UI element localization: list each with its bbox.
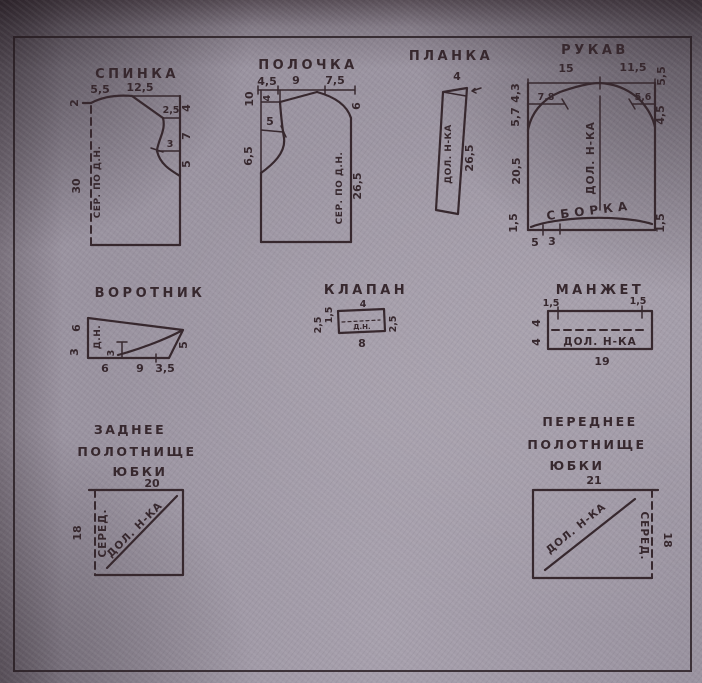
pattern-sheet-photo: СПИНКА 5,5 12,5 2 2,5 3 4 7 5 30 СЕР. ПО… <box>0 0 702 683</box>
klapan-measure-right: 2,5 <box>388 316 399 333</box>
polochka-shoulder-line <box>280 92 317 102</box>
piece-spinka: СПИНКА 5,5 12,5 2 2,5 3 4 7 5 30 СЕР. ПО… <box>70 56 205 271</box>
polochka-measure-top-b: 9 <box>292 74 300 87</box>
polochka-measure-left-b: 6,5 <box>242 146 255 166</box>
manzhet-measure-left-b: 4 <box>530 338 543 346</box>
spinka-measure-shoulder-b: 12,5 <box>126 81 153 94</box>
spinka-measure-side-c: 5 <box>180 160 193 168</box>
polochka-center-line-label: СЕР. ПО Д.Н. <box>335 152 345 225</box>
piece-planka: ПЛАНКА 4 26,5 ДОЛ. Н-КА <box>403 46 498 226</box>
rukav-grain-label: ДОЛ. Н-КА <box>585 121 597 195</box>
planka-top-arrow <box>472 88 481 93</box>
vorotnik-measure-bottom-b: 9 <box>136 362 144 375</box>
planka-top-fold-line <box>443 92 466 96</box>
polochka-measure-neck: 6 <box>350 102 363 110</box>
rukav-measure-left-b: 5,7 <box>509 107 522 127</box>
polochka-measure-top-a: 4,5 <box>257 75 277 88</box>
klapan-measure-left-a: 1,5 <box>324 307 335 324</box>
klapan-inner-dashed-line <box>342 320 380 322</box>
vorotnik-measure-bottom-a: 6 <box>101 362 109 375</box>
spinka-measure-neck: 2 <box>68 99 81 107</box>
manzhet-measure-top-b: 1,5 <box>630 296 647 307</box>
planka-measure-length: 26,5 <box>463 144 476 171</box>
zadnee-title-line2: ПОЛОТНИЩЕ <box>77 444 196 459</box>
piece-perednee-polotnishche: ПЕРЕДНЕЕ ПОЛОТНИЩЕ ЮБКИ 21 18 СЕРЕД. ДОЛ… <box>502 406 674 594</box>
vorotnik-measure-left-b: 3 <box>68 348 81 356</box>
perednee-title-line3: ЮБКИ <box>550 458 605 473</box>
perednee-title-line1: ПЕРЕДНЕЕ <box>542 414 637 429</box>
rukav-measure-right-a: 5,5 <box>655 66 668 86</box>
rukav-measure-cap-b: 5,6 <box>635 92 652 103</box>
spinka-armhole-lower <box>157 151 180 176</box>
polochka-armhole <box>261 102 284 173</box>
vorotnik-measure-bottom-c: 3,5 <box>155 362 175 375</box>
vorotnik-measure-right: 5 <box>177 341 190 349</box>
klapan-measure-bottom: 8 <box>358 337 366 350</box>
rukav-title: РУКАВ <box>561 43 629 58</box>
polochka-measure-in-b: 5 <box>266 115 274 128</box>
vorotnik-title: ВОРОТНИК <box>95 286 206 301</box>
vorotnik-grain-label: Д.Н. <box>93 325 103 349</box>
rukav-measure-right-b: 4,5 <box>654 105 667 125</box>
polochka-measure-top-c: 7,5 <box>325 74 345 87</box>
manzhet-measure-bottom: 19 <box>594 355 609 368</box>
spinka-title: СПИНКА <box>95 67 179 82</box>
zadnee-grain-diagonal <box>107 496 177 568</box>
polochka-measure-length: 26,5 <box>351 172 364 199</box>
spinka-neck-shoulder-line <box>83 96 163 118</box>
spinka-measure-in-b: 3 <box>167 139 174 150</box>
vorotnik-measure-in: 3 <box>106 350 117 357</box>
klapan-title: КЛАПАН <box>324 283 408 298</box>
polochka-neck-curve <box>317 92 351 118</box>
zadnee-title-line1: ЗАДНЕЕ <box>94 422 166 437</box>
rukav-measure-bottom-b: 3 <box>548 235 556 248</box>
perednee-center-line-label: СЕРЕД. <box>638 511 650 560</box>
spinka-measure-side-a: 4 <box>180 104 193 112</box>
perednee-measure-right: 18 <box>661 532 674 547</box>
rukav-measure-left-a: 4,3 <box>509 83 522 103</box>
klapan-grain-label: Д.Н. <box>353 323 370 331</box>
perednee-title-line2: ПОЛОТНИЩЕ <box>527 437 646 452</box>
spinka-armhole-upper <box>157 118 164 150</box>
rukav-measure-top-a: 15 <box>558 62 573 75</box>
zadnee-grain-label: ДОЛ. Н-КА <box>105 500 165 560</box>
rukav-measure-bottom-a: 5 <box>531 236 539 249</box>
manzhet-corner-ticks <box>558 306 642 319</box>
planka-measure-width: 4 <box>453 70 461 83</box>
planka-title: ПЛАНКА <box>409 49 493 64</box>
spinka-measure-length: 30 <box>70 178 83 194</box>
rukav-measure-top-b: 11,5 <box>619 61 646 74</box>
manzhet-grain-label: ДОЛ. Н-КА <box>563 336 637 348</box>
piece-manzhet: МАНЖЕТ 1,5 1,5 4 4 ДОЛ. Н-КА 19 <box>518 281 678 369</box>
piece-polochka: ПОЛОЧКА 4,5 9 7,5 10 4 5 6,5 6 26,5 СЕР.… <box>246 52 376 252</box>
piece-rukav: РУКАВ 15 11,5 7,8 5,6 СБОРКА 5 3 ДОЛ. Н-… <box>505 38 695 258</box>
polochka-measure-left-a: 10 <box>243 91 256 107</box>
rukav-measure-left-d: 1,5 <box>507 213 520 233</box>
piece-klapan: КЛАПАН 4 Д.Н. 1,5 2,5 2,5 8 <box>308 281 418 353</box>
polochka-title: ПОЛОЧКА <box>258 58 357 73</box>
vorotnik-measure-left-a: 6 <box>70 324 83 332</box>
spinka-measure-shoulder-a: 5,5 <box>90 83 110 96</box>
polochka-measure-in-a: 4 <box>262 94 273 101</box>
planka-grain-label: ДОЛ. Н-КА <box>444 124 454 184</box>
klapan-measure-top: 4 <box>360 299 367 310</box>
spinka-center-line-label: СЕР. ПО Д.Н. <box>93 146 103 219</box>
rukav-measure-left-c: 20,5 <box>510 157 523 184</box>
manzhet-measure-top-a: 1,5 <box>543 298 560 309</box>
zadnee-measure-left: 18 <box>71 525 84 540</box>
manzhet-measure-left-a: 4 <box>530 319 543 327</box>
rukav-measure-right-c: 1,5 <box>654 213 667 233</box>
spinka-measure-in-a: 2,5 <box>163 105 180 116</box>
rukav-measure-cap-a: 7,8 <box>538 92 555 103</box>
zadnee-measure-top: 20 <box>144 477 160 490</box>
klapan-measure-left-b: 2,5 <box>313 317 324 334</box>
perednee-measure-top: 21 <box>586 474 601 487</box>
piece-vorotnik: ВОРОТНИК 3 Д.Н. 6 3 5 6 9 3,5 <box>68 282 223 377</box>
spinka-measure-side-b: 7 <box>180 132 193 140</box>
piece-zadnee-polotnishche: ЗАДНЕЕ ПОЛОТНИЩЕ ЮБКИ 20 18 СЕРЕД. ДОЛ. … <box>63 416 208 588</box>
